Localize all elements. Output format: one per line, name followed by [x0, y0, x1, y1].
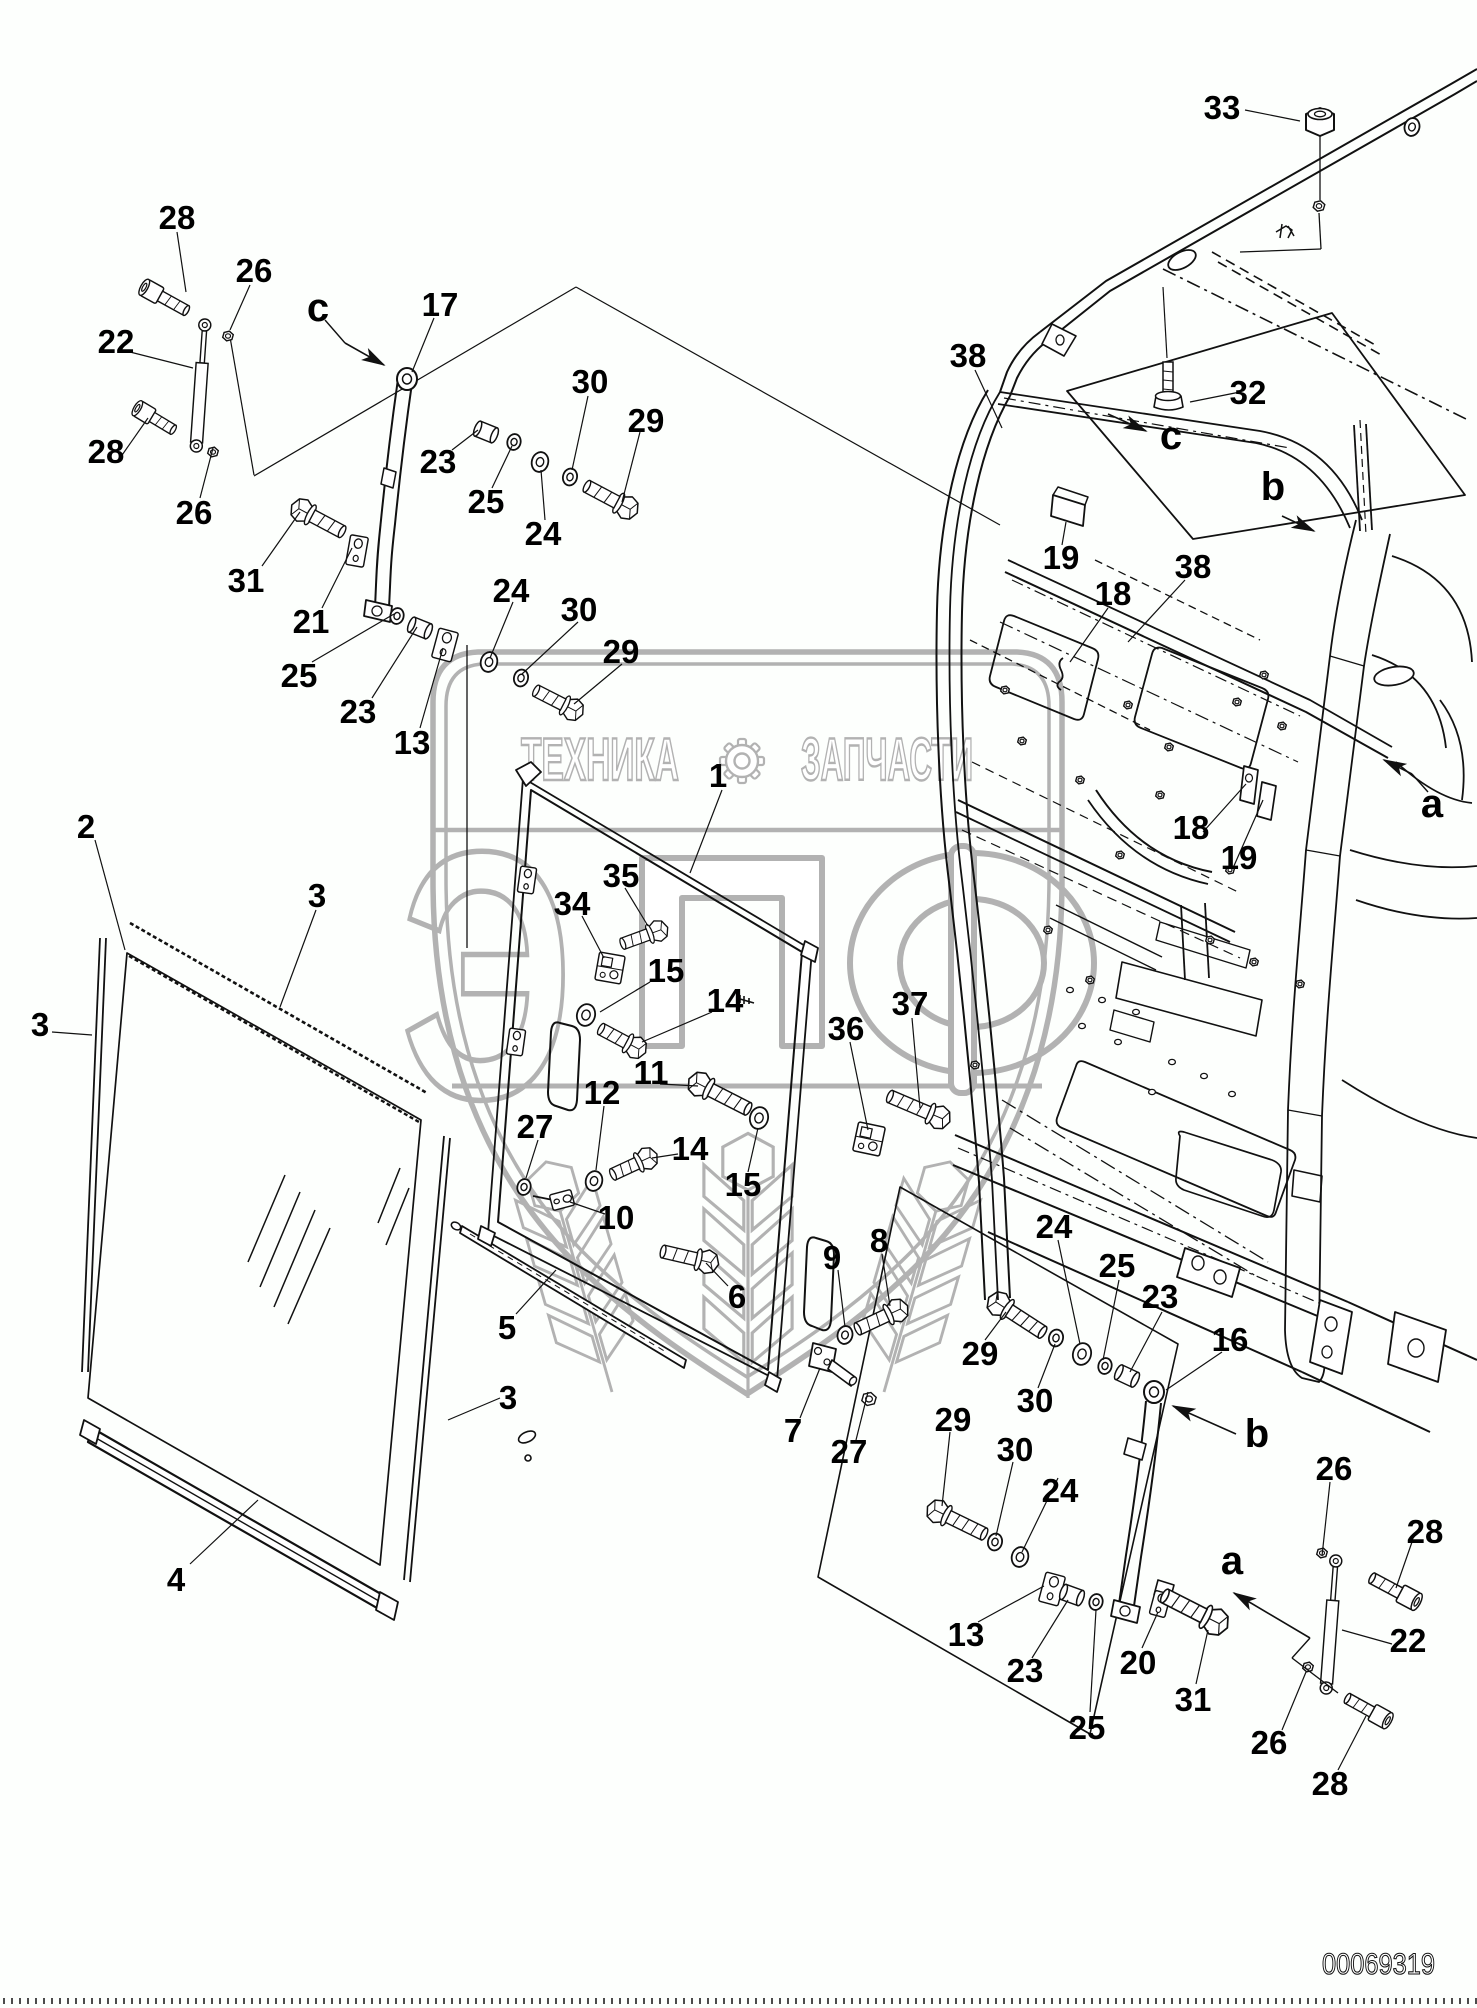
svg-text:32: 32	[1230, 374, 1267, 411]
svg-text:24: 24	[1042, 1472, 1079, 1509]
svg-text:19: 19	[1043, 539, 1080, 576]
svg-text:24: 24	[493, 572, 530, 609]
svg-text:35: 35	[603, 857, 640, 894]
svg-text:8: 8	[870, 1222, 888, 1259]
svg-text:5: 5	[498, 1309, 516, 1346]
svg-text:22: 22	[98, 323, 135, 360]
svg-text:30: 30	[997, 1431, 1034, 1468]
svg-text:20: 20	[1120, 1644, 1157, 1681]
svg-text:c: c	[1160, 414, 1182, 458]
svg-text:16: 16	[1212, 1321, 1249, 1358]
svg-text:25: 25	[468, 483, 505, 520]
svg-text:26: 26	[236, 252, 273, 289]
svg-text:2: 2	[77, 808, 95, 845]
svg-text:25: 25	[281, 657, 318, 694]
svg-text:11: 11	[634, 1054, 669, 1091]
svg-text:25: 25	[1099, 1247, 1136, 1284]
svg-text:3: 3	[499, 1379, 517, 1416]
svg-text:28: 28	[88, 433, 125, 470]
svg-text:37: 37	[892, 985, 929, 1022]
svg-text:25: 25	[1069, 1709, 1106, 1746]
svg-text:14: 14	[707, 982, 744, 1019]
svg-text:29: 29	[628, 402, 665, 439]
svg-text:21: 21	[293, 603, 330, 640]
svg-text:3: 3	[31, 1006, 49, 1043]
svg-text:22: 22	[1390, 1622, 1427, 1659]
svg-text:c: c	[307, 286, 329, 330]
svg-text:28: 28	[1407, 1513, 1444, 1550]
svg-text:4: 4	[167, 1561, 186, 1598]
svg-text:15: 15	[725, 1166, 762, 1203]
svg-text:30: 30	[1017, 1382, 1054, 1419]
svg-text:b: b	[1261, 465, 1285, 509]
svg-text:30: 30	[572, 363, 609, 400]
svg-text:24: 24	[525, 515, 562, 552]
svg-text:3: 3	[308, 877, 326, 914]
svg-text:ЗАПЧАСТИ: ЗАПЧАСТИ	[801, 726, 973, 793]
svg-text:27: 27	[831, 1433, 868, 1470]
svg-text:12: 12	[584, 1074, 621, 1111]
svg-text:31: 31	[1175, 1681, 1212, 1718]
svg-text:29: 29	[962, 1335, 999, 1372]
svg-text:27: 27	[517, 1108, 554, 1145]
svg-text:28: 28	[159, 199, 196, 236]
svg-text:23: 23	[1007, 1652, 1044, 1689]
svg-text:7: 7	[784, 1412, 802, 1449]
svg-text:34: 34	[554, 885, 591, 922]
svg-text:18: 18	[1173, 809, 1210, 846]
svg-text:36: 36	[828, 1010, 865, 1047]
svg-text:15: 15	[648, 952, 685, 989]
svg-text:6: 6	[728, 1278, 746, 1315]
svg-text:23: 23	[1142, 1278, 1179, 1315]
svg-text:10: 10	[598, 1199, 635, 1236]
svg-text:1: 1	[709, 757, 727, 794]
svg-text:17: 17	[422, 286, 459, 323]
svg-text:31: 31	[228, 562, 265, 599]
svg-text:00069319: 00069319	[1322, 1948, 1435, 1981]
svg-text:23: 23	[420, 443, 457, 480]
svg-text:13: 13	[394, 724, 431, 761]
svg-text:19: 19	[1221, 839, 1258, 876]
svg-text:24: 24	[1036, 1208, 1073, 1245]
svg-text:b: b	[1245, 1412, 1269, 1456]
svg-text:38: 38	[950, 337, 987, 374]
svg-text:29: 29	[935, 1401, 972, 1438]
svg-text:26: 26	[1251, 1724, 1288, 1761]
svg-text:18: 18	[1095, 575, 1132, 612]
svg-text:a: a	[1221, 1539, 1244, 1583]
svg-text:33: 33	[1204, 89, 1241, 126]
svg-text:9: 9	[823, 1239, 841, 1276]
svg-text:23: 23	[340, 693, 377, 730]
svg-text:14: 14	[672, 1130, 709, 1167]
svg-text:30: 30	[561, 591, 598, 628]
svg-text:38: 38	[1175, 548, 1212, 585]
svg-text:28: 28	[1312, 1765, 1349, 1802]
svg-text:29: 29	[603, 633, 640, 670]
svg-text:13: 13	[948, 1616, 985, 1653]
svg-text:26: 26	[176, 494, 213, 531]
svg-text:a: a	[1421, 782, 1444, 826]
svg-text:26: 26	[1316, 1450, 1353, 1487]
